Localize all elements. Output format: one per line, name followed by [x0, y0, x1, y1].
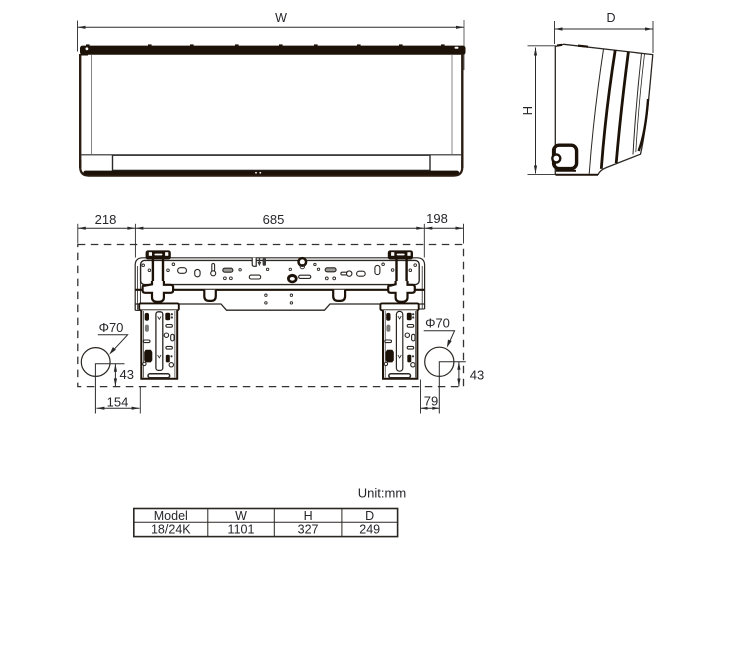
svg-text:Φ70: Φ70	[99, 320, 124, 335]
svg-text:218: 218	[95, 212, 117, 227]
svg-text:H: H	[304, 509, 313, 523]
svg-text:Unit:mm: Unit:mm	[358, 485, 406, 500]
svg-text:327: 327	[298, 523, 319, 537]
svg-text:D: D	[365, 509, 374, 523]
svg-text:Model: Model	[154, 509, 188, 523]
svg-text:18/24K: 18/24K	[151, 523, 191, 537]
svg-text:1101: 1101	[228, 523, 255, 537]
svg-text:79: 79	[424, 394, 438, 409]
svg-text:D: D	[606, 11, 615, 25]
svg-text:43: 43	[120, 367, 134, 382]
svg-text:43: 43	[470, 368, 484, 383]
svg-text:W: W	[275, 11, 287, 25]
svg-text:198: 198	[426, 211, 448, 226]
svg-text:H: H	[520, 106, 535, 115]
svg-text:Φ70: Φ70	[425, 316, 450, 331]
svg-text:154: 154	[107, 394, 129, 409]
svg-text:W: W	[235, 509, 247, 523]
svg-text:249: 249	[359, 523, 380, 537]
svg-text:685: 685	[263, 212, 285, 227]
